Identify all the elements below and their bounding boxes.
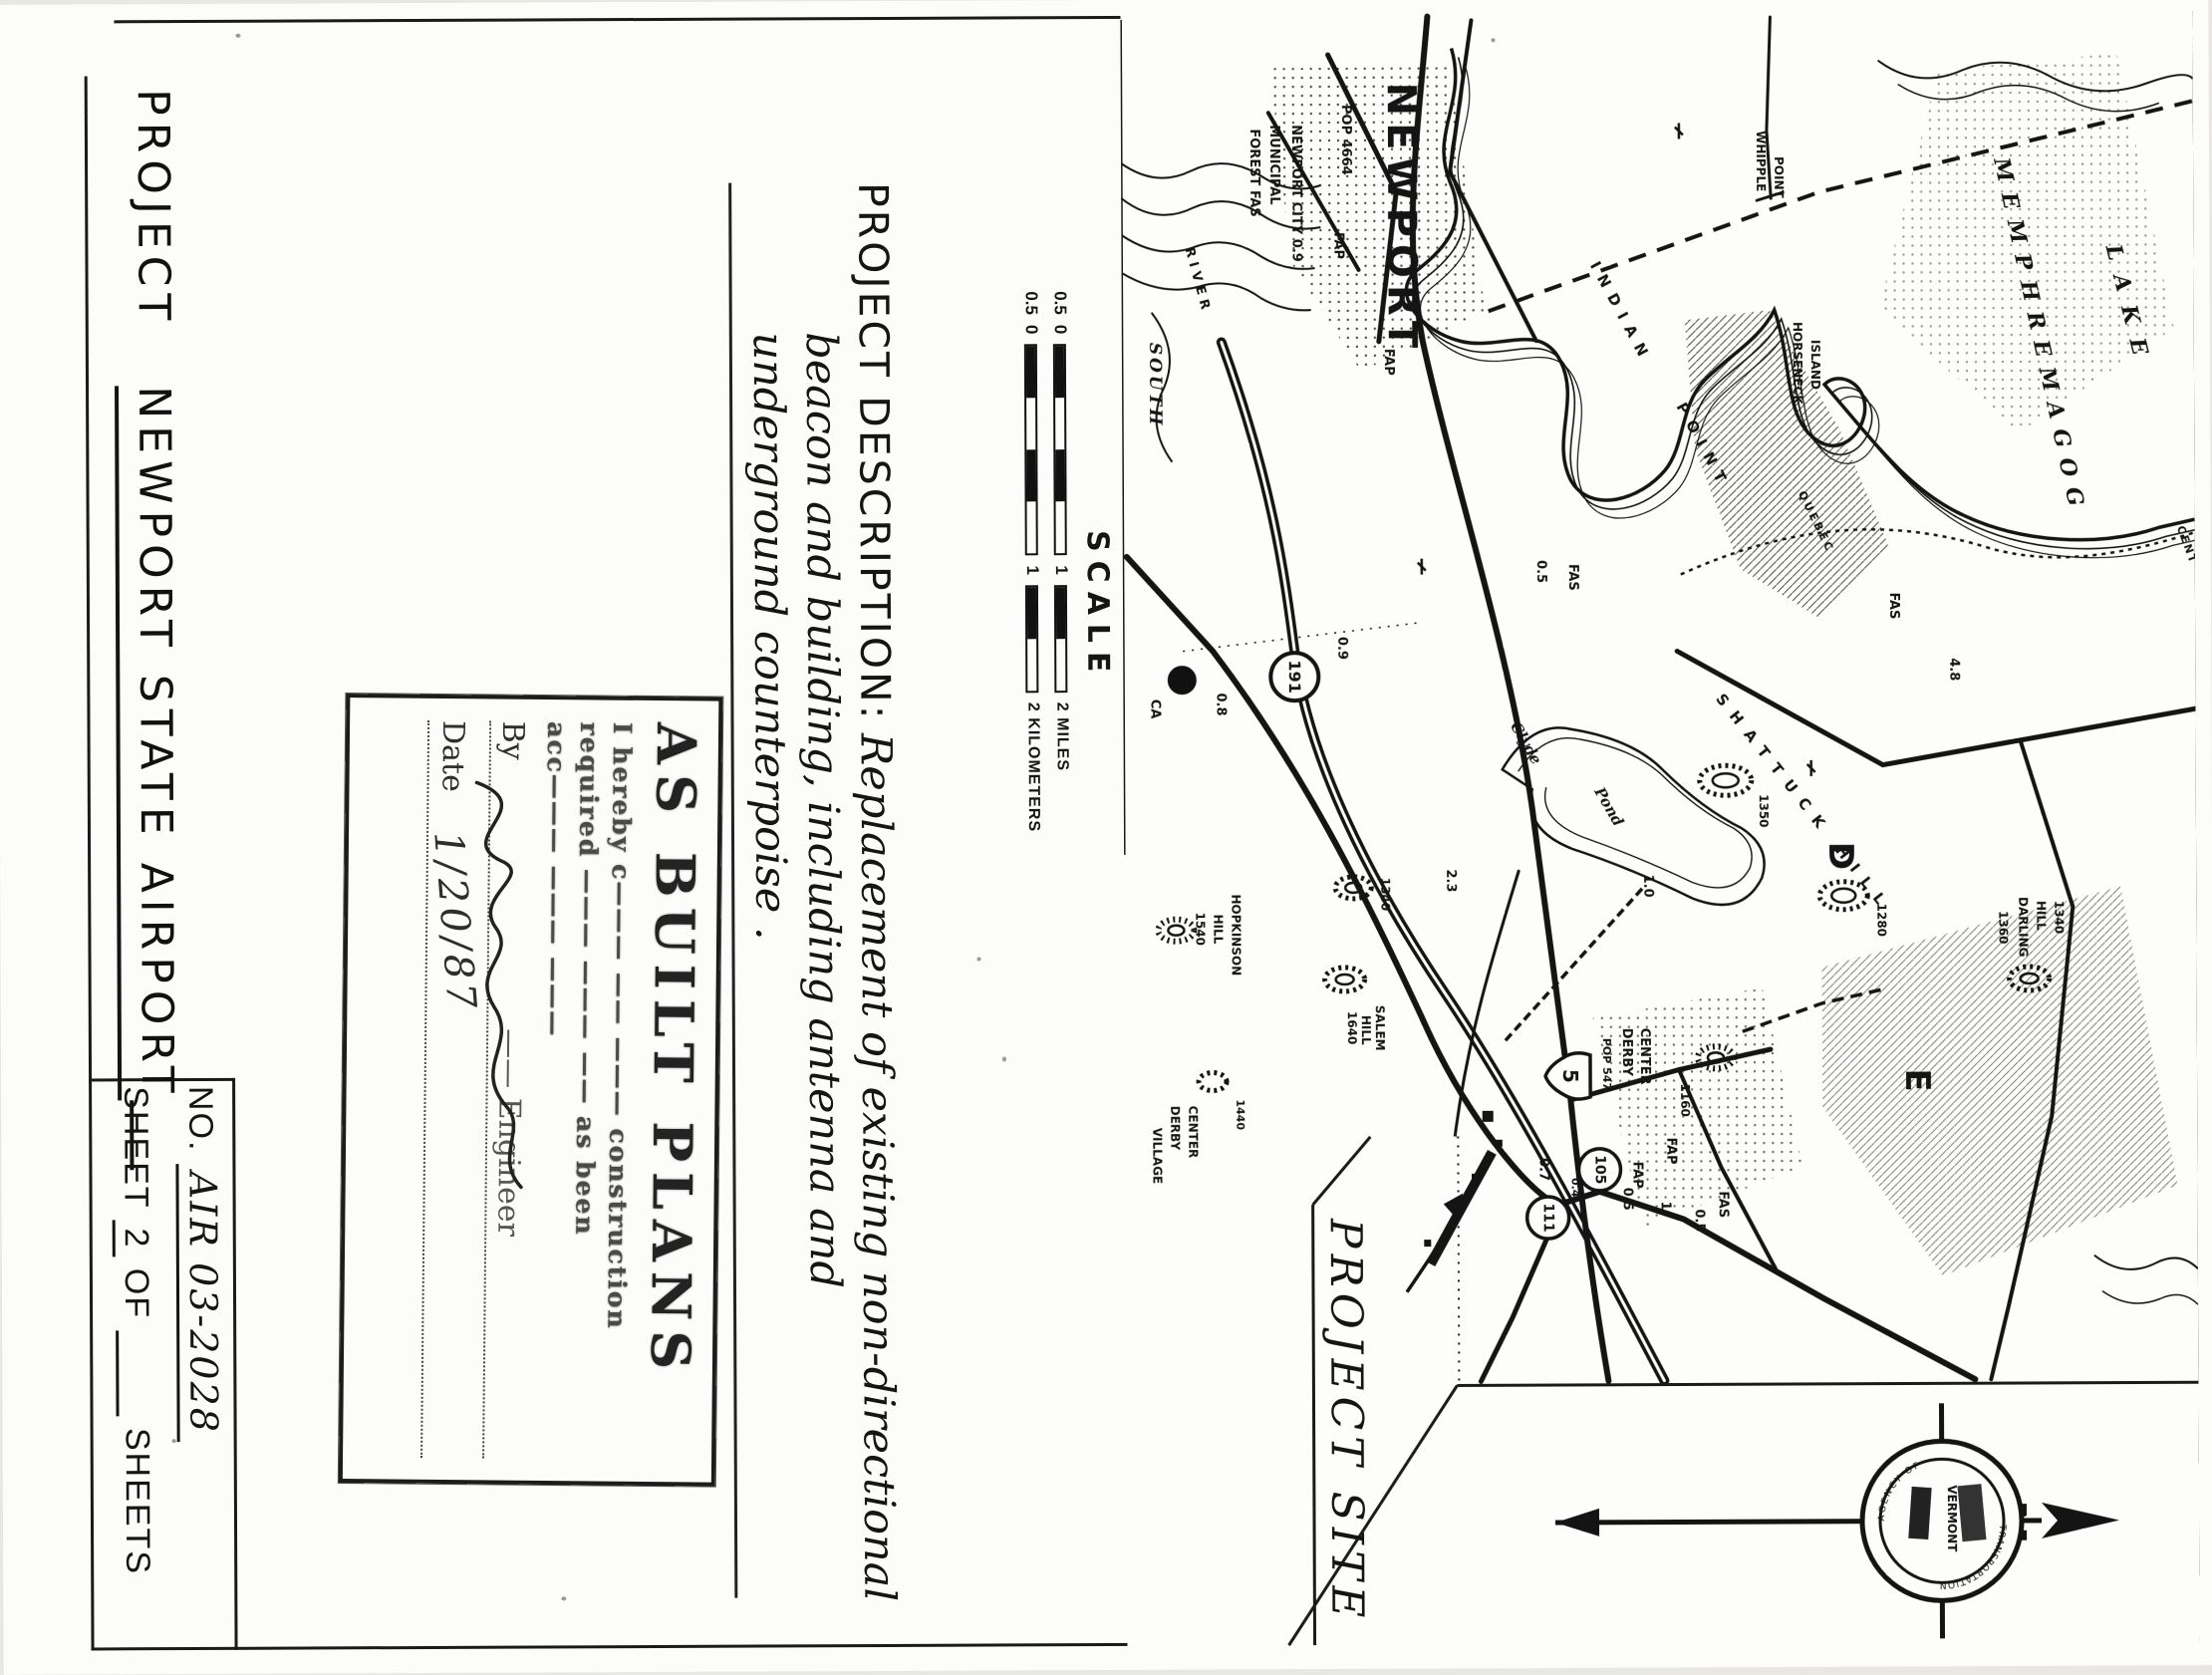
- svg-text:SALEM: SALEM: [1373, 1005, 1387, 1051]
- svg-text:ISLAND: ISLAND: [1808, 340, 1822, 390]
- svg-text:1440: 1440: [1234, 1099, 1246, 1130]
- svg-text:FAP: FAP: [1663, 1137, 1678, 1164]
- scale-row-km: 0.5 0 1 2 KILOMETERS: [1021, 291, 1045, 1100]
- svg-text:191: 191: [1285, 660, 1304, 693]
- scanned-plan-sheet: PROJECT NEWPORT STATE AIRPORT NO. AIR 03…: [0, 0, 2212, 1675]
- svg-text:FAP: FAP: [1629, 1162, 1644, 1189]
- svg-text:1340: 1340: [2052, 901, 2066, 934]
- location-map: NEWPORT POP 4664 FAP NEWPORT CITY 0.9 MU…: [1120, 9, 2199, 1648]
- as-built-stamp: AS BUILT PLANS I hereby c——— —— ——— cons…: [339, 694, 723, 1487]
- svg-text:0.7: 0.7: [1535, 1158, 1550, 1181]
- svg-text:DERBY: DERBY: [1619, 1028, 1634, 1077]
- svg-text:WHIPPLE: WHIPPLE: [1754, 131, 1768, 191]
- scale-tick: 1: [1051, 565, 1071, 575]
- scale-end-label: 2 MILES: [1052, 702, 1070, 771]
- pond-dot: [1168, 667, 1196, 695]
- svg-text:1280: 1280: [1874, 904, 1888, 937]
- svg-text:FAS: FAS: [1886, 593, 1901, 620]
- svg-text:4.8: 4.8: [1946, 658, 1961, 681]
- svg-text:HOPKINSON: HOPKINSON: [1229, 894, 1243, 976]
- svg-text:0.5: 0.5: [1692, 1209, 1707, 1232]
- scan-speck: [235, 34, 240, 38]
- svg-text:DERBY: DERBY: [1168, 1106, 1182, 1151]
- project-description: PROJECT DESCRIPTION: Replacement of exis…: [728, 182, 905, 1598]
- sheets-label: SHEETS: [119, 1428, 157, 1575]
- svg-text:1.0: 1.0: [1640, 875, 1655, 898]
- svg-text:E: E: [1897, 1068, 1937, 1091]
- page-title: PROJECT NEWPORT STATE AIRPORT: [126, 89, 205, 1080]
- svg-text:0.9: 0.9: [1334, 637, 1349, 660]
- svg-text:0.4: 0.4: [1569, 1178, 1582, 1198]
- svg-text:1160: 1160: [1678, 1083, 1692, 1116]
- svg-text:POINT: POINT: [1772, 156, 1786, 199]
- scan-speck: [561, 1596, 566, 1600]
- svg-text:FAP: FAP: [1330, 232, 1345, 259]
- title-block: PROJECT NEWPORT STATE AIRPORT: [90, 89, 205, 1080]
- by-label: By: [495, 720, 530, 759]
- svg-text:5: 5: [1558, 1069, 1582, 1083]
- scale-tick: 0: [1050, 325, 1070, 335]
- svg-text:CENTER: CENTER: [1186, 1106, 1200, 1159]
- svg-text:0.5: 0.5: [1620, 1188, 1635, 1211]
- scan-speck: [172, 1439, 176, 1443]
- svg-text:POP 4664: POP 4664: [1338, 105, 1353, 175]
- svg-text:NEWPORT CITY 0.9: NEWPORT CITY 0.9: [1288, 125, 1304, 262]
- description-line1: Replacement of existing non-directional: [851, 733, 905, 1601]
- sheet-label: SHEET: [117, 1086, 155, 1209]
- svg-text:CA: CA: [1147, 699, 1162, 719]
- scale-segments: [1054, 585, 1067, 693]
- scale-row-miles: 0.5 0 1 2 MILES: [1050, 291, 1074, 1100]
- no-label: NO.: [181, 1086, 219, 1153]
- svg-text:111: 111: [1540, 1203, 1556, 1232]
- svg-text:CENTER: CENTER: [1637, 1028, 1652, 1085]
- of-label: OF: [118, 1268, 155, 1319]
- svg-text:2.3: 2.3: [1443, 869, 1458, 892]
- svg-text:SOUTH: SOUTH: [1145, 343, 1165, 428]
- description-line3: underground counterpoise .: [743, 332, 796, 940]
- scale-segments: [1024, 344, 1038, 555]
- svg-text:MUNICIPAL: MUNICIPAL: [1266, 125, 1281, 204]
- stamp-heading: AS BUILT PLANS: [638, 722, 708, 1461]
- no-value: AIR 03-2028: [175, 1164, 225, 1442]
- airport-title: NEWPORT STATE AIRPORT: [115, 386, 182, 1100]
- svg-text:HILL: HILL: [1211, 914, 1225, 944]
- svg-text:FOREST FAS: FOREST FAS: [1246, 129, 1261, 216]
- svg-text:1: 1: [1658, 1202, 1673, 1211]
- svg-text:1640: 1640: [1345, 1011, 1359, 1044]
- seal-center-label: VERMONT: [1945, 1485, 1959, 1552]
- vermont-seal-icon: AGENCY OF TRANSPORTATION VERMONT: [1862, 1441, 2023, 1601]
- project-site-label: PROJECT SITE: [1320, 1218, 1373, 1624]
- svg-text:D: D: [1820, 842, 1860, 870]
- svg-text:1350: 1350: [1757, 794, 1771, 827]
- svg-text:DARLING: DARLING: [2016, 897, 2030, 958]
- svg-text:105: 105: [1591, 1155, 1607, 1184]
- scale-segments: [1025, 585, 1038, 693]
- svg-text:1540: 1540: [1193, 913, 1207, 946]
- project-label: PROJECT: [128, 89, 179, 327]
- svg-text:HORSENECK: HORSENECK: [1791, 322, 1804, 405]
- description-line2: beacon and building, including antenna a…: [796, 332, 850, 1288]
- svg-text:0.5: 0.5: [1533, 560, 1548, 583]
- scale-tick: 0.5: [1050, 291, 1070, 315]
- svg-text:1360: 1360: [1996, 911, 2010, 944]
- sheets-total-blank: [116, 1330, 148, 1416]
- svg-text:FAS: FAS: [1565, 564, 1580, 591]
- description-label: PROJECT DESCRIPTION:: [849, 182, 899, 722]
- scale-bar: SCALE 0.5 0 1 2 MILES 0.5 0 1 2 KILOMETE…: [1016, 291, 1118, 1100]
- scale-segments: [1053, 344, 1067, 555]
- scan-speck: [1002, 1056, 1006, 1061]
- svg-text:HILL: HILL: [1359, 1015, 1373, 1045]
- svg-text:HILL: HILL: [2034, 901, 2048, 931]
- scale-tick: 0.5: [1021, 291, 1041, 315]
- svg-text:POP 547: POP 547: [1600, 1038, 1613, 1090]
- svg-text:VILLAGE: VILLAGE: [1150, 1128, 1164, 1184]
- city-label: NEWPORT: [1378, 83, 1425, 356]
- svg-text:FAS: FAS: [1716, 1191, 1731, 1218]
- scan-speck: [1492, 38, 1496, 42]
- scale-tick: 0: [1021, 325, 1041, 335]
- sheet-number-block: NO. AIR 03-2028 SHEET 2 OF SHEETS: [99, 1086, 234, 1645]
- svg-text:FAP: FAP: [1381, 349, 1396, 376]
- sheet-number: 2: [113, 1220, 155, 1256]
- scan-speck: [977, 958, 981, 962]
- scale-end-label: 2 KILOMETERS: [1023, 702, 1042, 832]
- site-marker: [1483, 1111, 1493, 1121]
- scale-tick: 1: [1022, 565, 1042, 575]
- scale-label: SCALE: [1080, 530, 1117, 1100]
- svg-text:1340: 1340: [1378, 878, 1392, 911]
- svg-text:0.8: 0.8: [1213, 693, 1228, 715]
